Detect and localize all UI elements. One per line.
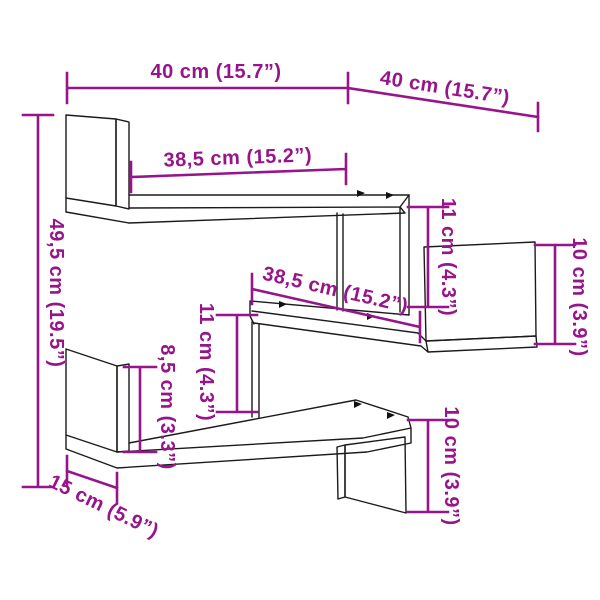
top-shelf-board: [66, 195, 409, 223]
dim-label-width-left: 40 cm (15.7”): [150, 61, 281, 83]
diagram-canvas: 40 cm (15.7”) 40 cm (15.7”) 49,5 cm (19.…: [0, 0, 600, 600]
dim-label-clearance-middle: 11 cm (4.3”): [195, 303, 217, 421]
mount-mark: [386, 192, 394, 199]
dim-label-middle-shelf: 38,5 cm (15.2”): [260, 263, 410, 318]
bottom-right-end-panel: [345, 437, 406, 513]
dimension-labels: 40 cm (15.7”) 40 cm (15.7”) 49,5 cm (19.…: [45, 61, 590, 543]
dim-label-end-panel-bottom: 10 cm (3.9”): [440, 406, 462, 525]
dim-label-back-panel-right: 10 cm (3.9”): [568, 237, 590, 356]
bottom-end-panel-face: [66, 349, 117, 452]
top-end-panel-side: [116, 119, 129, 209]
mount-mark: [357, 190, 365, 197]
divider-middle: [252, 322, 259, 418]
corner-shelf-diagram: 40 cm (15.7”) 40 cm (15.7”) 49,5 cm (19.…: [0, 0, 600, 600]
dim-clearance-middle: [217, 315, 257, 412]
bottom-end-panel-side: [117, 364, 129, 452]
dim-label-top-shelf: 38,5 cm (15.2”): [163, 144, 312, 171]
right-middle-board: [426, 336, 537, 352]
bottom-shelf-board: [66, 400, 411, 468]
top-end-panel-face: [66, 115, 116, 206]
dim-label-clearance-bottom: 8,5 cm (3.3”): [156, 344, 178, 469]
dim-label-clearance-top: 11 cm (4.3”): [437, 198, 459, 316]
mount-mark: [279, 301, 287, 308]
dim-label-height-total: 49,5 cm (19.5”): [45, 219, 67, 368]
dim-label-depth: 15 cm (5.9”): [45, 471, 162, 543]
